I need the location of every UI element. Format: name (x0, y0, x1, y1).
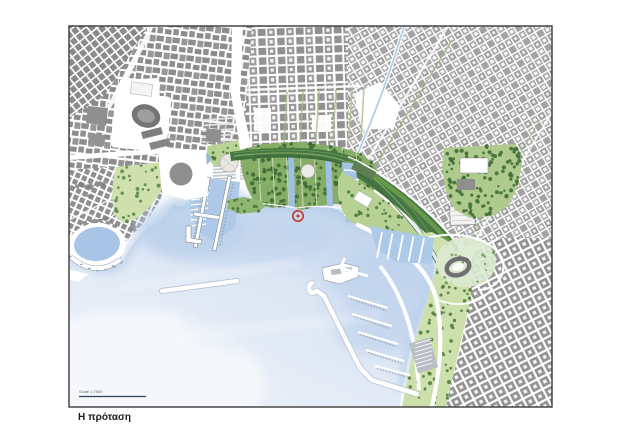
svg-text:Scale 1:7500: Scale 1:7500 (79, 389, 103, 394)
svg-text:Η πρόταση: Η πρόταση (78, 412, 131, 423)
